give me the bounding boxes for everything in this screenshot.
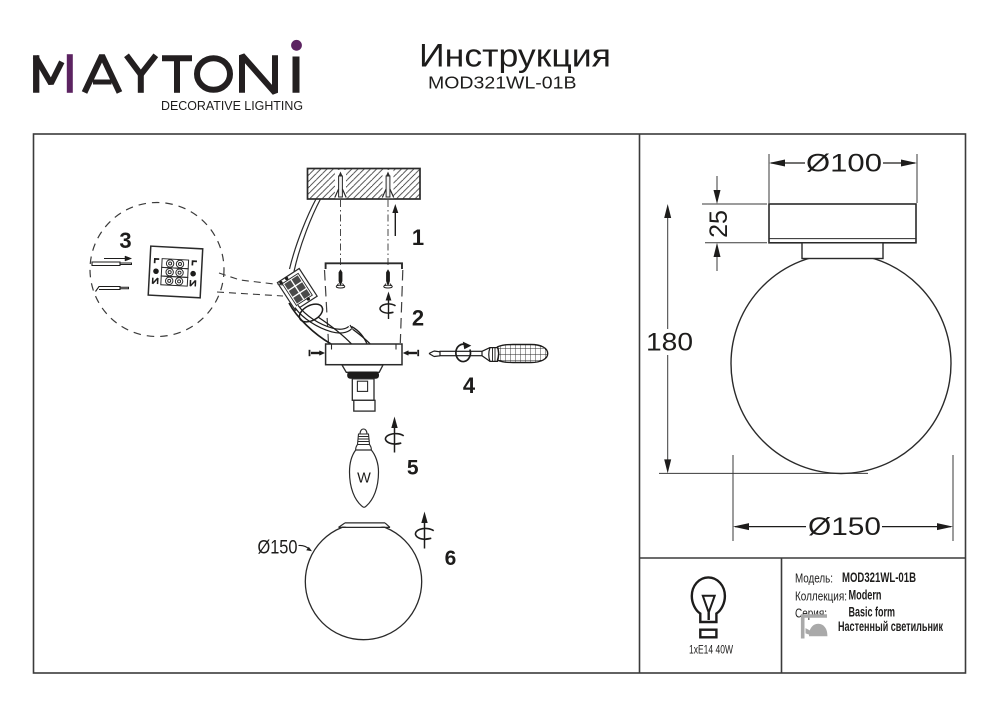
svg-text:Ø150: Ø150 [808, 513, 881, 541]
svg-text:W: W [357, 471, 371, 487]
svg-text:Коллекция:: Коллекция: [795, 589, 847, 604]
svg-text:MOD321WL-01B: MOD321WL-01B [842, 570, 916, 585]
svg-text:1: 1 [412, 225, 424, 250]
svg-text:1xE14 40W: 1xE14 40W [689, 643, 733, 657]
svg-text:180: 180 [646, 329, 693, 357]
svg-text:Ø150: Ø150 [258, 538, 298, 559]
svg-text:Серия:: Серия: [795, 606, 827, 621]
svg-text:5: 5 [407, 457, 419, 480]
svg-text:4: 4 [463, 373, 476, 398]
svg-text:Basic form: Basic form [849, 605, 896, 620]
svg-text:6: 6 [445, 547, 457, 570]
svg-text:3: 3 [119, 228, 131, 253]
svg-text:Инструкция: Инструкция [419, 38, 611, 74]
svg-text:Modern: Modern [849, 588, 882, 603]
svg-text:2: 2 [412, 306, 424, 331]
svg-text:Ø100: Ø100 [806, 150, 882, 178]
svg-text:Настенный светильник: Настенный светильник [838, 619, 943, 634]
svg-text:MOD321WL-01B: MOD321WL-01B [428, 73, 577, 93]
svg-text:25: 25 [705, 210, 733, 238]
svg-text:Модель:: Модель: [795, 571, 833, 586]
svg-text:DECORATIVE LIGHTING: DECORATIVE LIGHTING [161, 98, 303, 113]
